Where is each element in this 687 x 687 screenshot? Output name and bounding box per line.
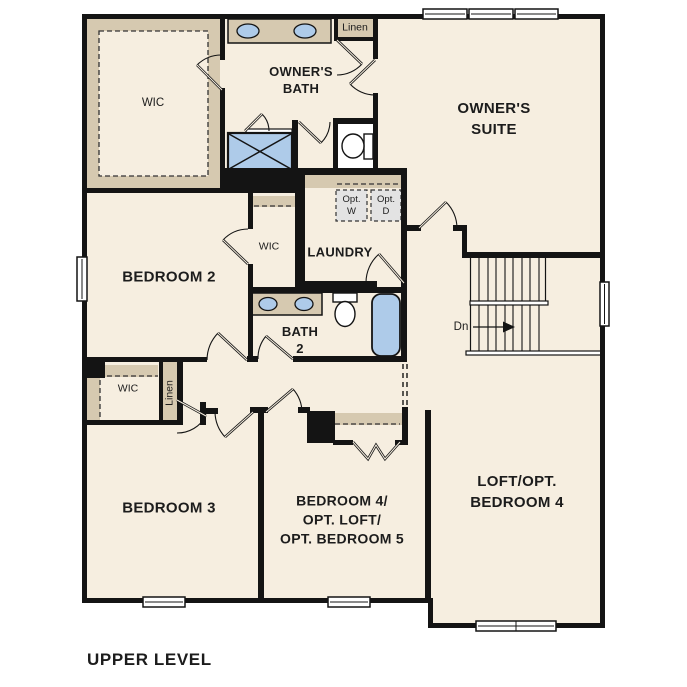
floor-plan-drawing (0, 0, 687, 687)
window-icon (328, 597, 370, 607)
bedroom4-label-line1: BEDROOM 4/ (280, 492, 404, 511)
laundry-counter (305, 175, 401, 188)
window-icon (515, 9, 558, 19)
window-icon (476, 621, 556, 631)
owners-bath-label-line1: OWNER'S (269, 63, 333, 80)
level-title: UPPER LEVEL (87, 649, 212, 670)
stair-landing-edge (470, 301, 548, 305)
sink-icon (295, 298, 313, 311)
bedroom2-label: BEDROOM 2 (122, 267, 216, 288)
bath2-label-line1: BATH (282, 323, 318, 340)
owners-suite-label: OWNER'S SUITE (457, 98, 530, 140)
opt-dryer-label: Opt. D (377, 194, 395, 218)
toilet-icon (342, 134, 373, 159)
bath2-vanity (252, 293, 322, 315)
bedroom4-label-line3: OPT. BEDROOM 5 (280, 530, 404, 549)
sink-icon (259, 298, 277, 311)
bathtub-icon (372, 294, 400, 356)
laundry-label: LAUNDRY (307, 244, 372, 261)
opt-washer-label-line1: Opt. (343, 194, 361, 206)
loft-label-line1: LOFT/OPT. (470, 471, 564, 492)
bedroom3-linen-label: Linen (163, 380, 176, 406)
loft-label: LOFT/OPT. BEDROOM 4 (470, 471, 564, 513)
window-icon (423, 9, 467, 19)
bedroom3-wic-side-shelf (87, 378, 100, 420)
bedroom3-label: BEDROOM 3 (122, 498, 216, 519)
bedroom4-label-line2: OPT. LOFT/ (280, 511, 404, 530)
bedroom4-label: BEDROOM 4/ OPT. LOFT/ OPT. BEDROOM 5 (280, 492, 404, 549)
owners-suite-label-line2: SUITE (457, 119, 530, 140)
bath2-label: BATH 2 (282, 323, 318, 357)
opt-washer-label-line2: W (343, 206, 361, 218)
owners-bath-label-line2: BATH (269, 80, 333, 97)
linen-upper-label: Linen (342, 21, 368, 34)
toilet-icon (333, 293, 357, 327)
opt-washer-label: Opt. W (343, 194, 361, 218)
bedroom3-wic-shelf (105, 365, 158, 377)
loft-label-line2: BEDROOM 4 (470, 492, 564, 513)
bath2-label-line2: 2 (282, 340, 318, 357)
floor-plan-page: WIC OWNER'S BATH Linen OWNER'S SUITE Opt… (0, 0, 687, 687)
bedroom4-closet-shelf (333, 413, 402, 425)
window-icon (77, 257, 87, 301)
owners-wic-label: WIC (142, 96, 164, 110)
opt-dryer-label-line2: D (377, 206, 395, 218)
owners-bath-label: OWNER'S BATH (269, 63, 333, 97)
opt-dryer-label-line1: Opt. (377, 194, 395, 206)
owners-bath-vanity (228, 19, 331, 43)
stair-railing (466, 351, 601, 355)
window-icon (600, 282, 609, 326)
bedroom3-wic-label: WIC (118, 382, 138, 395)
sink-icon (294, 24, 316, 38)
owners-suite-label-line1: OWNER'S (457, 98, 530, 119)
window-icon (143, 597, 185, 607)
sink-icon (237, 24, 259, 38)
owners-shower (228, 129, 292, 170)
window-icon (469, 9, 513, 19)
stairs-down-label: Dn (454, 320, 469, 334)
bedroom2-wic-label: WIC (259, 240, 279, 253)
